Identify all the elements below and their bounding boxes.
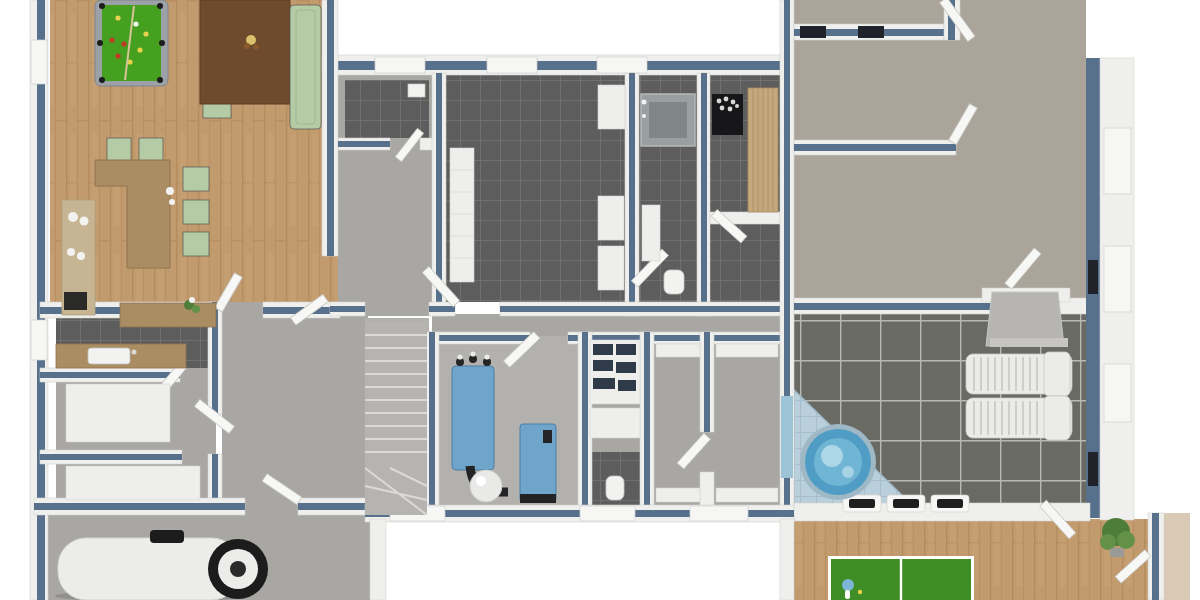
sun-lounger-2 <box>966 396 1072 440</box>
wall-cap-seg <box>429 306 455 312</box>
wall-cap-seg <box>330 306 365 312</box>
window-left-2 <box>31 320 47 360</box>
shower-shelf <box>642 205 660 261</box>
wall-cap-seg <box>704 332 710 432</box>
wall-tt-exterior-face <box>1164 513 1190 600</box>
bar-stool <box>183 232 209 256</box>
floorplan-render <box>0 0 1200 600</box>
storage-bench <box>716 488 778 502</box>
niche-dark <box>849 499 875 508</box>
lounger-backrest <box>1044 396 1070 440</box>
floor-hallway <box>222 302 368 508</box>
window-top-1 <box>375 57 425 73</box>
toilet <box>664 270 684 294</box>
dining-table <box>200 0 290 104</box>
wall-patio-west <box>370 519 386 600</box>
wall-cap-seg <box>1152 513 1159 600</box>
sofa-cushion <box>296 10 315 124</box>
billiard-table <box>95 0 168 86</box>
window-dark-2 <box>858 26 884 38</box>
wall-cap-seg <box>647 61 780 70</box>
wall-cap-seg <box>425 335 530 341</box>
window-dark-3 <box>1088 260 1098 294</box>
hot-tub-foam-2 <box>842 466 854 478</box>
buffer-cylinder <box>470 470 502 502</box>
glass-door-spa <box>781 396 793 478</box>
window-dark-1 <box>800 26 826 38</box>
sun-lounger-1 <box>966 352 1072 396</box>
fireplace-body <box>986 292 1064 346</box>
window-right-1 <box>1104 128 1131 194</box>
storage-bench <box>656 344 700 357</box>
window-right-3 <box>1104 364 1131 422</box>
window-bottom-3 <box>690 506 748 521</box>
tank-end-hub <box>230 561 246 577</box>
kitchenette-counter-top <box>120 303 216 327</box>
island-sink <box>166 187 174 195</box>
wc <box>408 84 425 97</box>
hvac-unit-2-base <box>520 494 556 503</box>
wall-cap-seg <box>34 503 245 510</box>
island-tap <box>169 199 175 205</box>
shelf-cabinet <box>590 408 640 438</box>
bench-top <box>598 85 625 129</box>
window-top-2 <box>487 57 537 73</box>
bar-stool <box>183 167 209 191</box>
fireplace-hearth <box>990 338 1068 347</box>
bench-1 <box>598 196 624 240</box>
wall-cap-seg <box>794 144 956 151</box>
tank-valve <box>150 530 184 543</box>
lockers <box>450 148 474 282</box>
kitchenette-sink <box>88 348 130 364</box>
shower-tray <box>649 102 687 138</box>
wall-storage34 <box>700 472 714 508</box>
window-left-1 <box>31 40 47 84</box>
shower-head <box>642 100 647 105</box>
coffee-machine <box>64 292 87 310</box>
staircase <box>365 322 427 515</box>
wall-cap-seg <box>644 332 650 508</box>
tank-room <box>55 530 268 600</box>
shower-valve <box>642 114 646 118</box>
window-right-2 <box>1104 246 1131 312</box>
storage-bench <box>656 488 700 502</box>
hvac-unit-1 <box>452 366 494 470</box>
bench-2 <box>598 246 624 290</box>
wall-cap-seg <box>40 454 182 460</box>
wall-cap-seg <box>212 454 218 500</box>
bar-stool <box>139 138 163 161</box>
wall-cap-seg <box>537 61 597 70</box>
tt-ball <box>858 590 862 594</box>
window-top-3 <box>597 57 647 73</box>
wall-cap-seg <box>327 0 334 256</box>
wall-cap-seg <box>429 332 435 508</box>
billiard-felt <box>102 5 161 81</box>
stair-flight <box>365 322 427 468</box>
floor-door-threshold <box>322 252 340 302</box>
bar-stool <box>107 138 131 161</box>
cylinder-highlight <box>476 476 486 486</box>
wall-cap-seg <box>338 141 390 147</box>
wall-cap-seg <box>582 332 588 508</box>
tt-paddle-handle <box>845 590 850 599</box>
hot-tub-foam <box>821 445 843 467</box>
storage-cabinet-2 <box>66 466 200 500</box>
window-bottom-2 <box>580 506 635 521</box>
niche-dark <box>893 499 919 508</box>
storage-bench <box>716 344 778 357</box>
tt-paddle <box>842 579 854 591</box>
wall-niches <box>843 495 969 512</box>
toilet-small <box>606 476 624 500</box>
wall-cap-seg <box>425 61 487 70</box>
wall-patio-east <box>780 519 794 600</box>
wc-sink <box>408 84 425 97</box>
wall-cap-seg <box>500 306 788 312</box>
storage-cabinet-1 <box>66 384 170 442</box>
kitchenette-tap <box>132 350 137 355</box>
wall-cap-seg <box>40 372 180 378</box>
hvac-unit-2-panel <box>543 430 552 443</box>
hot-tub <box>800 424 876 500</box>
lounger-backrest <box>1044 352 1070 396</box>
wall-cap-seg <box>701 73 707 316</box>
fireplace <box>982 288 1070 347</box>
window-dark-4 <box>1088 452 1098 486</box>
niche-dark <box>937 499 963 508</box>
bar-stool <box>183 200 209 224</box>
